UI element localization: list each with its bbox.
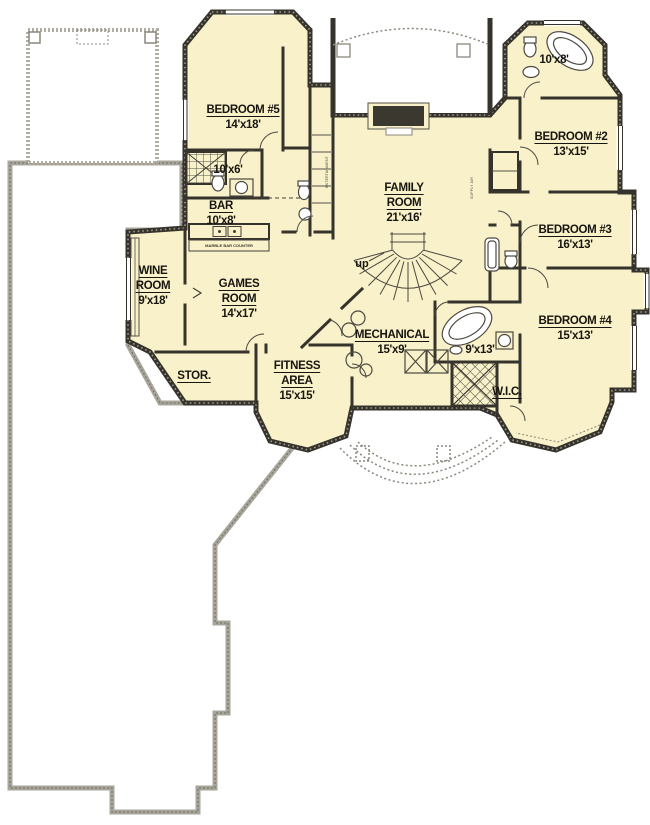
room-name: GAMES — [219, 277, 260, 292]
room-name: ROOM — [219, 292, 260, 307]
entertainment-closet-label: ENTERTAINMENT — [325, 156, 329, 188]
room-label-bedroom-5: BEDROOM #5 14'x18' — [206, 103, 279, 133]
toilet-tank — [505, 251, 517, 256]
room-label-wic: W.I.C. — [492, 385, 522, 400]
mechanical-chase-hatched — [452, 362, 497, 406]
sink — [236, 182, 248, 194]
patio-post — [457, 44, 470, 57]
room-name: MECHANICAL — [355, 328, 429, 343]
toilet — [299, 185, 310, 200]
room-name: FAMILY — [384, 181, 423, 196]
window — [125, 258, 132, 320]
room-name: AREA — [274, 374, 320, 389]
sink — [450, 346, 462, 354]
room-name: BAR — [206, 199, 235, 214]
room-label-games-room: GAMES ROOM 14'x17' — [219, 277, 260, 322]
room-label-fitness-area: FITNESS AREA 15'x15' — [274, 359, 320, 404]
room-dims: 14'x18' — [206, 118, 279, 133]
room-dims: 15'x13' — [538, 329, 611, 344]
room-dims: 15'x15' — [274, 389, 320, 404]
porch-post — [145, 32, 156, 43]
room-label-bedroom-4: BEDROOM #4 15'x13' — [538, 314, 611, 344]
room-dims: 14'x17' — [219, 307, 260, 322]
room-name: ROOM — [384, 196, 423, 211]
room-dims: 10'x8' — [539, 53, 568, 68]
toilet-tank — [298, 181, 309, 186]
patio-post — [337, 44, 350, 57]
room-name: STOR. — [177, 369, 210, 384]
room-label-bath-9x13: 9'x13' — [465, 343, 494, 358]
room-label-family-room: FAMILY ROOM 21'x16' — [384, 181, 423, 226]
room-label-storage: STOR. — [177, 369, 210, 384]
room-dims: 10'x8' — [206, 214, 235, 229]
supply-closet-label: SUPPLY AIR — [470, 177, 474, 199]
room-name: W.I.C. — [492, 385, 522, 400]
room-dims: 9'x18' — [136, 294, 171, 309]
window — [644, 274, 650, 308]
room-name: FITNESS — [274, 359, 320, 374]
window — [631, 210, 638, 254]
toilet-tank — [524, 37, 536, 43]
room-label-bath-bedroom-5: 10'x6' — [213, 163, 242, 178]
room-name: ROOM — [136, 279, 171, 294]
tub — [485, 238, 499, 271]
window — [617, 126, 624, 170]
sink — [523, 67, 539, 78]
floor-plan-page: BEDROOM #5 14'x18' 10'x6' BAR 10'x8' WIN… — [0, 0, 650, 825]
room-name: WINE — [136, 264, 171, 279]
room-dims: 13'x15' — [534, 145, 607, 160]
room-dims: 21'x16' — [384, 211, 423, 226]
window — [182, 100, 189, 140]
floor-plan-drawing — [0, 0, 650, 825]
window — [226, 9, 274, 16]
room-name: BEDROOM #4 — [538, 314, 611, 329]
room-name: BEDROOM #2 — [534, 130, 607, 145]
porch-post — [29, 32, 40, 43]
window — [631, 326, 638, 370]
room-label-bedroom-2: BEDROOM #2 13'x15' — [534, 130, 607, 160]
room-label-bedroom-3: BEDROOM #3 16'x13' — [538, 223, 611, 253]
room-name: BEDROOM #3 — [538, 223, 611, 238]
room-label-bar: BAR 10'x8' — [206, 199, 235, 229]
room-label-mechanical: MECHANICAL 15'x9' — [355, 328, 429, 358]
room-dims: 9'x13' — [465, 343, 494, 358]
room-label-wine-room: WINE ROOM 9'x18' — [136, 264, 171, 309]
room-dims: 15'x9' — [355, 343, 429, 358]
room-dims: 10'x6' — [213, 163, 242, 178]
room-label-bath-upper-right: 10'x8' — [539, 53, 568, 68]
room-name: BEDROOM #5 — [206, 103, 279, 118]
porch-outline-top-left — [28, 30, 157, 163]
stairs-up-label: up — [355, 258, 368, 270]
sink — [499, 335, 511, 347]
window — [544, 19, 580, 26]
room-dims: 16'x13' — [538, 238, 611, 253]
bar-counter-label: MARBLE BAR COUNTER — [205, 243, 253, 248]
